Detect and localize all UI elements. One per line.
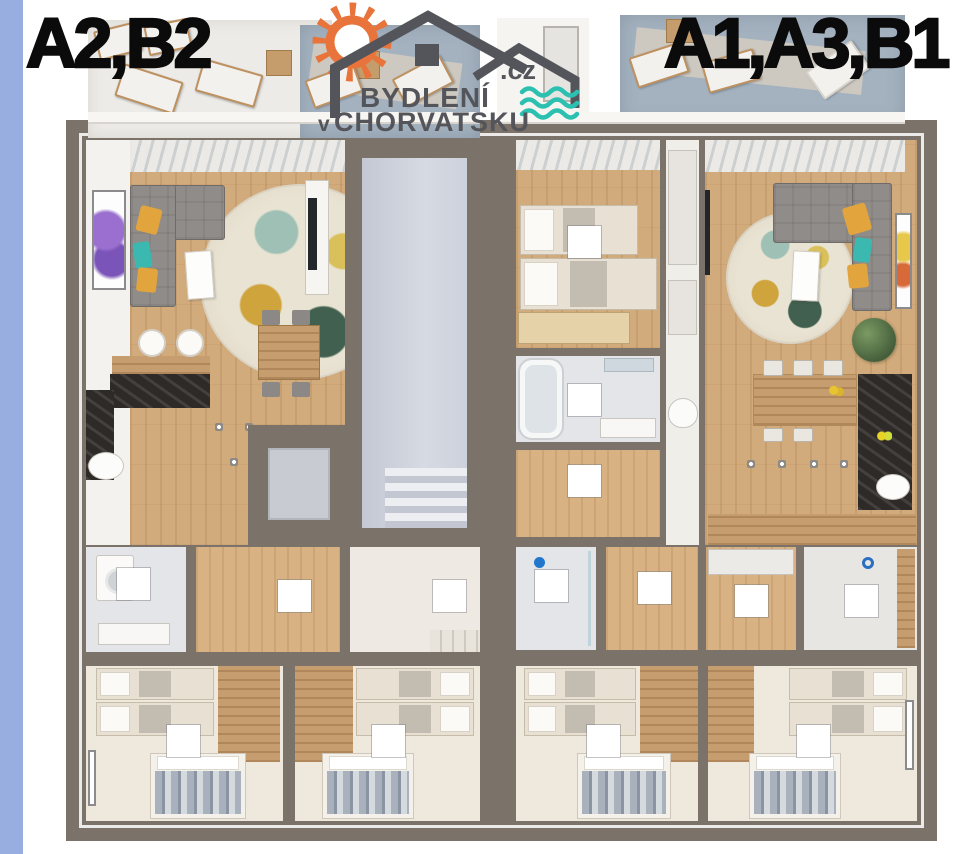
bar-stool	[138, 329, 166, 357]
wardrobe	[295, 666, 353, 762]
room-label	[167, 725, 200, 757]
hall-closet	[668, 150, 697, 265]
side-table-icon	[266, 50, 292, 76]
dining-chair	[262, 382, 280, 397]
bar-stool	[176, 329, 204, 357]
floor-spotlight	[215, 423, 223, 431]
wardrobe	[640, 666, 698, 762]
logo-domain: .cz	[500, 55, 536, 85]
room-label	[638, 572, 671, 604]
double-bed	[322, 753, 414, 819]
logo-subtitle-prefix: v	[318, 113, 330, 136]
bathtub	[518, 358, 564, 440]
mirror	[604, 358, 654, 372]
wardrobe	[218, 666, 280, 762]
dining-chair	[823, 360, 843, 376]
plant	[852, 318, 896, 362]
room-label	[535, 570, 568, 602]
dining-table	[258, 325, 320, 380]
pillow	[136, 267, 158, 293]
living-wall-band-a2	[86, 140, 130, 545]
room-label	[568, 226, 601, 258]
terrace-window	[705, 140, 905, 172]
pillow	[847, 263, 869, 289]
floor-spotlight	[840, 460, 848, 468]
shower-glass	[588, 551, 591, 646]
kitchen-bar	[708, 514, 916, 545]
wardrobe	[708, 666, 754, 762]
stair-core	[345, 120, 480, 545]
shaft-block	[248, 425, 345, 545]
bath-vanity	[98, 623, 170, 645]
room-label	[587, 725, 620, 757]
room-label	[117, 568, 150, 600]
coffee-table	[791, 250, 821, 301]
terrace-window	[130, 140, 345, 172]
hallway-a2	[196, 547, 340, 652]
left-accent-strip	[0, 0, 23, 854]
room-label	[433, 580, 466, 612]
hall-closet	[668, 280, 697, 335]
dining-chair	[292, 382, 310, 397]
flower-vase	[828, 384, 844, 398]
dining-chair	[763, 360, 783, 376]
toilet	[668, 398, 698, 428]
tv-icon	[308, 198, 317, 270]
dining-chair	[763, 428, 783, 442]
kitchen-counter-wood	[112, 356, 210, 374]
floor-spotlight	[778, 460, 786, 468]
utility-counter	[897, 549, 915, 648]
shower-head-icon	[534, 557, 545, 568]
wall-art	[905, 700, 914, 770]
entry-steps	[430, 630, 480, 652]
floor-spotlight	[747, 460, 755, 468]
shaft-interior	[268, 448, 330, 520]
washer-hose-icon	[862, 557, 874, 569]
corridor-a1	[666, 140, 699, 545]
wardrobe	[708, 549, 794, 575]
room-label	[797, 725, 830, 757]
staircase	[385, 468, 467, 528]
room-label	[845, 585, 878, 617]
pillow	[852, 237, 872, 263]
double-bed	[577, 753, 671, 819]
single-bed	[789, 668, 907, 700]
wall-art	[895, 213, 912, 309]
coffee-table	[184, 250, 214, 300]
room-label	[278, 580, 311, 612]
double-bed	[749, 753, 841, 819]
single-bed	[96, 668, 214, 700]
kitchen-sink	[88, 452, 124, 480]
floor-spotlight	[230, 458, 238, 466]
wall-art	[92, 190, 126, 290]
logo-subtitle: CHORVATSKU	[334, 107, 530, 137]
dining-chair	[793, 428, 813, 442]
room-label	[372, 725, 405, 757]
floor-spotlight	[810, 460, 818, 468]
single-bed	[356, 668, 474, 700]
tv-icon	[705, 190, 710, 275]
room-label	[568, 384, 601, 416]
room-label	[735, 585, 768, 617]
dining-chair	[262, 310, 280, 325]
terrace-window	[516, 140, 660, 170]
double-bed	[150, 753, 246, 819]
waves-icon	[522, 89, 577, 118]
single-bed	[524, 668, 636, 700]
dining-table	[753, 374, 857, 426]
dining-chair	[793, 360, 813, 376]
lemon-bowl	[876, 430, 892, 442]
dresser	[518, 312, 630, 344]
dining-chair	[292, 310, 310, 325]
wall-art	[88, 750, 96, 806]
single-bed	[520, 258, 657, 310]
floorplan-image: A2,B2 A1,A3,B1 .cz BYDLENÍ v CHORVATSKU	[0, 0, 960, 854]
bydleni-v-chorvatsku-logo: .cz BYDLENÍ v CHORVATSKU	[303, 0, 603, 142]
kitchen-sink	[876, 474, 910, 500]
unit-label-left: A2,B2	[26, 8, 209, 78]
kitchen-counter-marble	[110, 374, 210, 408]
living-room-a1	[705, 140, 917, 545]
pillow	[132, 241, 152, 269]
bath-vanity	[600, 418, 656, 438]
unit-label-right: A1,A3,B1	[664, 8, 947, 78]
room-label	[568, 465, 601, 497]
plan-body	[66, 120, 937, 841]
